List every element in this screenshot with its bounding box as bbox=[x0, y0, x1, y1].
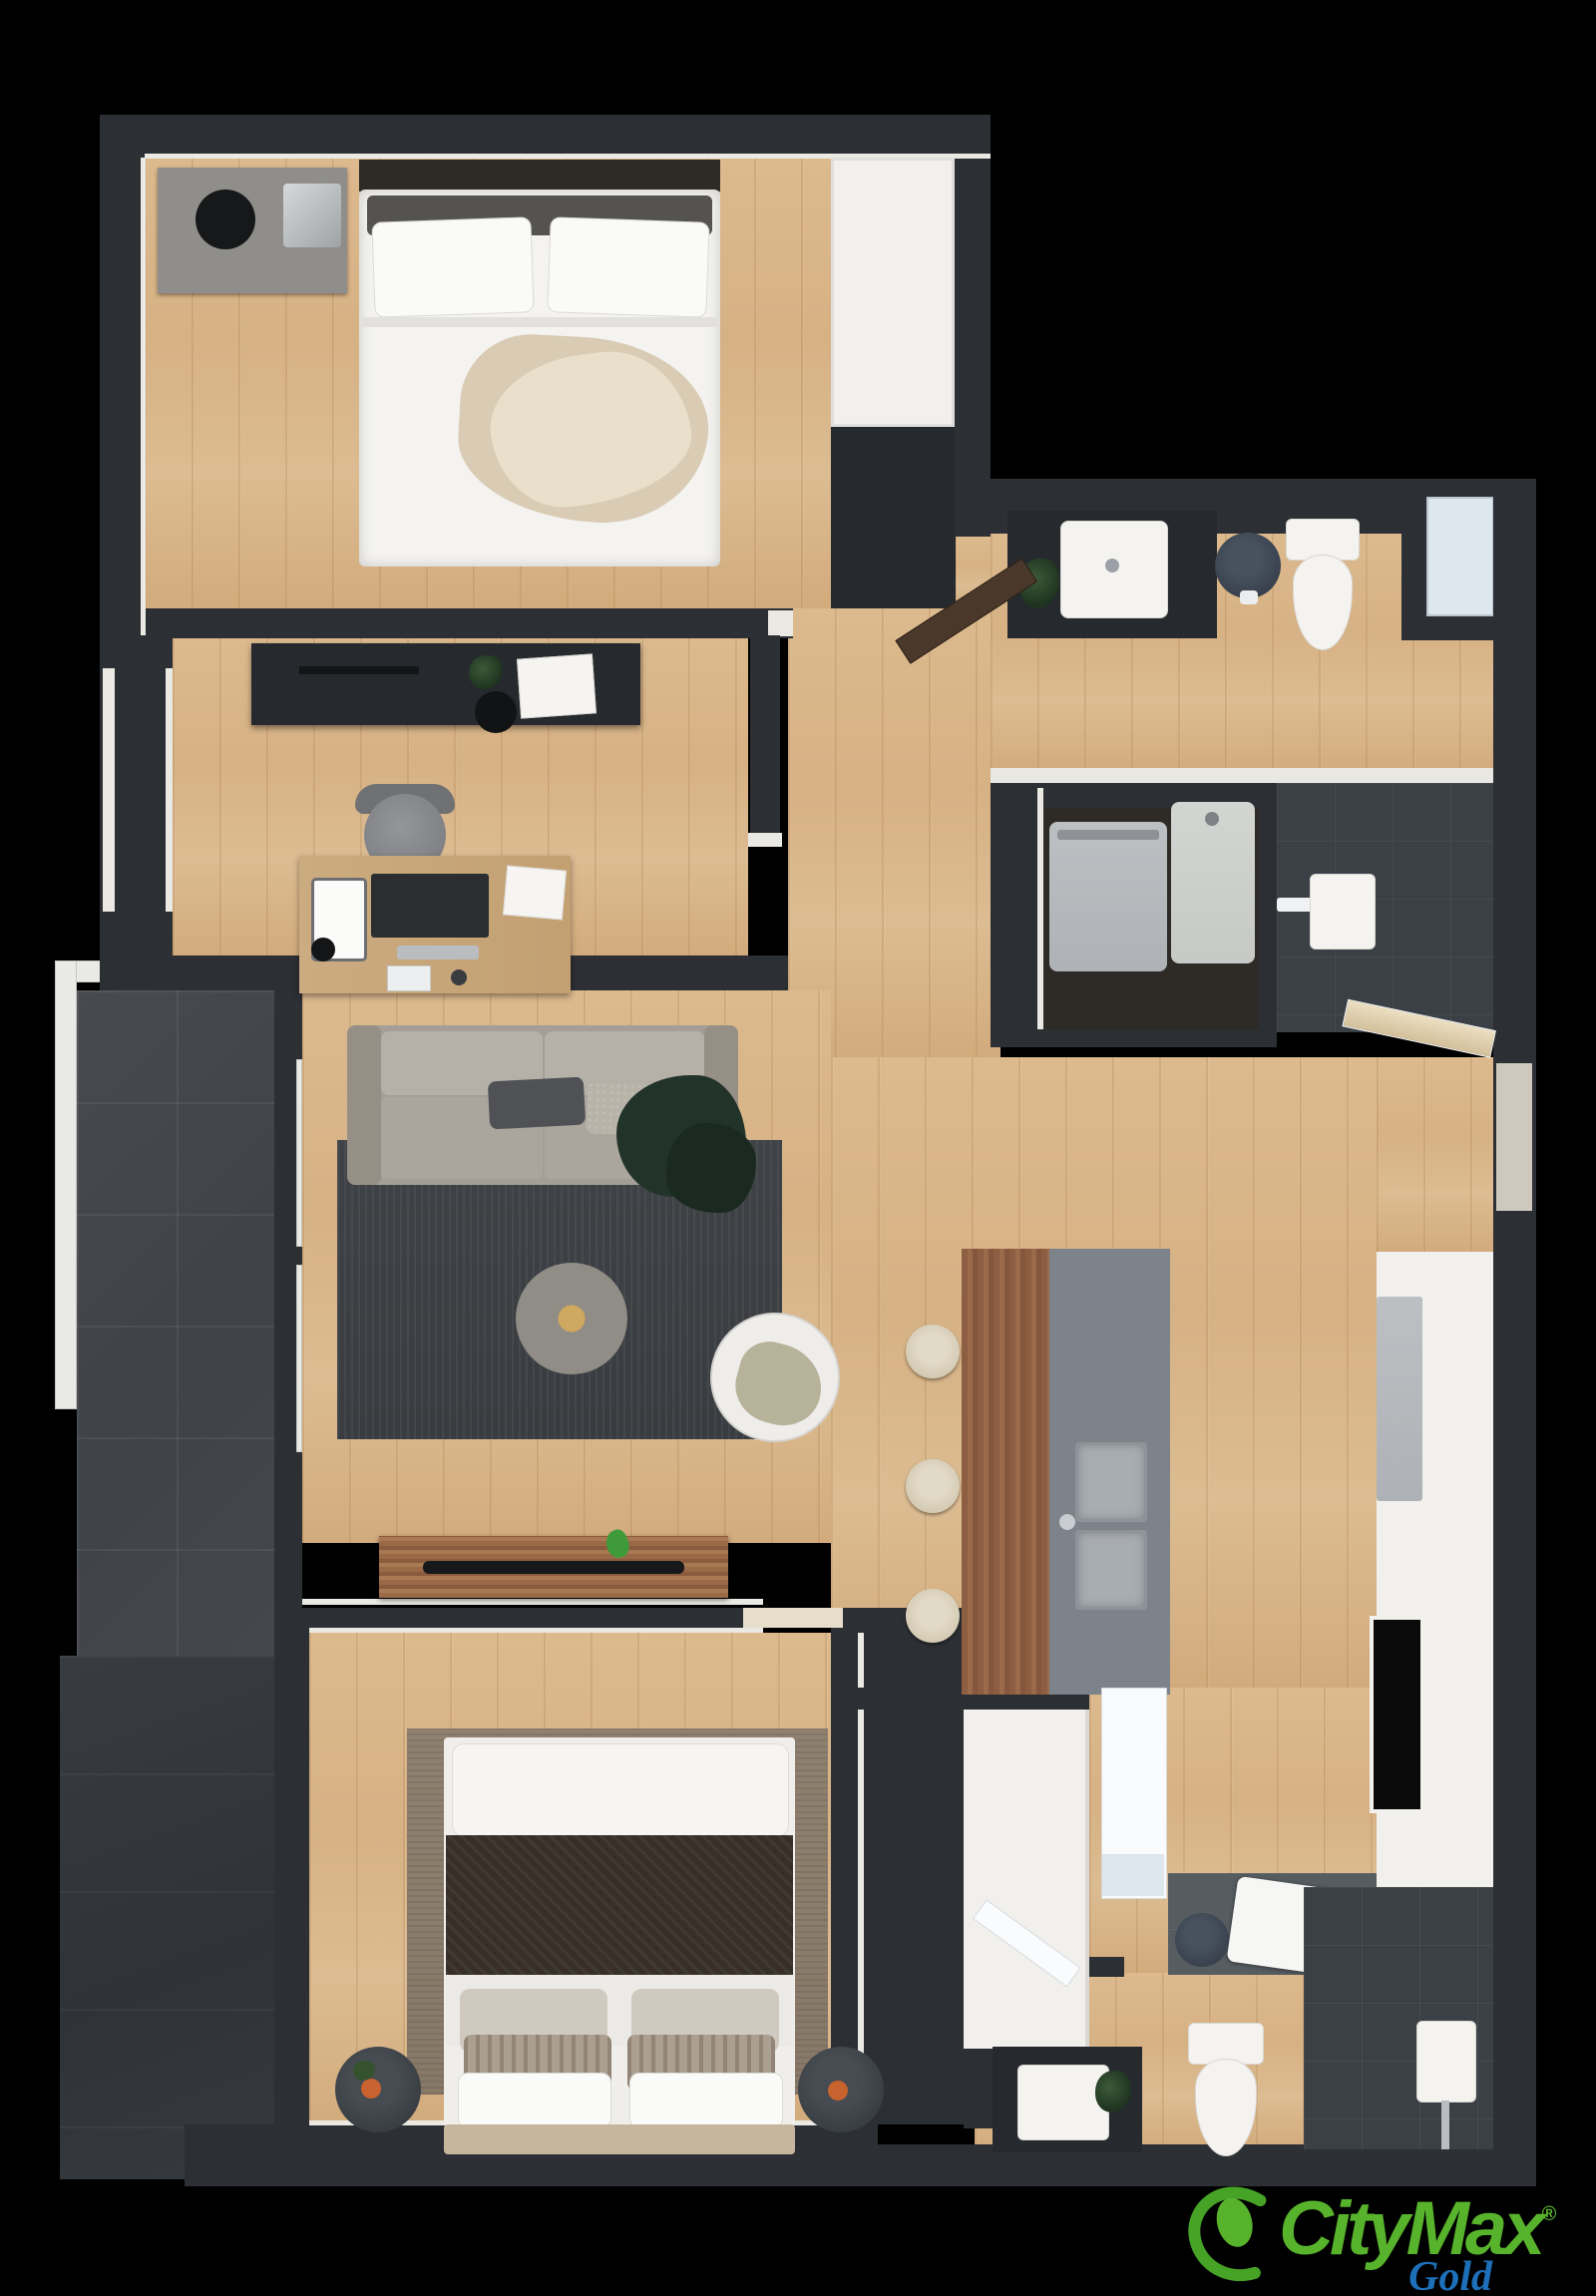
wall-closet-right bbox=[955, 158, 991, 537]
office-desk bbox=[299, 856, 571, 993]
bar-stool-1 bbox=[906, 1325, 960, 1378]
bed-1-pillow-right bbox=[547, 216, 709, 318]
wall-office-right bbox=[750, 635, 780, 835]
office-window-inner-sill bbox=[166, 668, 173, 912]
balcony-sliding-door-frame-a bbox=[296, 1059, 302, 1247]
desk-keyboard bbox=[397, 946, 479, 959]
washer bbox=[1049, 822, 1167, 971]
nightstand-2-right bbox=[798, 2047, 884, 2132]
wall-bedroom-2-left bbox=[274, 1628, 309, 2186]
shower-2-panel bbox=[1416, 2021, 1476, 2103]
bathroom-1-stool bbox=[1215, 533, 1281, 598]
bedroom-2-door-threshold bbox=[743, 1608, 843, 1628]
desk-mug bbox=[311, 938, 335, 961]
citymax-gold-logo: CityMax® Gold bbox=[1127, 2179, 1576, 2294]
brand-edition: Gold bbox=[1408, 2253, 1492, 2296]
bar-stool-2 bbox=[906, 1459, 960, 1513]
entry-floor bbox=[1377, 1057, 1493, 1252]
desk-papers bbox=[503, 865, 567, 920]
desk-mouse bbox=[451, 969, 467, 985]
office-door-jamb bbox=[768, 610, 793, 636]
dresser-plant bbox=[469, 655, 503, 689]
wall-office-top bbox=[145, 608, 793, 638]
nightstand-1-decor bbox=[283, 184, 341, 247]
nightstand-2-left bbox=[335, 2047, 421, 2132]
island-sink-basin-top bbox=[1075, 1442, 1147, 1522]
office-door-jamb-cap bbox=[748, 833, 782, 847]
nightstand-2-left-flower bbox=[361, 2079, 381, 2099]
bed-2-dark-blanket bbox=[446, 1835, 793, 1975]
citymax-swoosh-icon bbox=[1185, 2185, 1277, 2289]
wall-left-upper bbox=[100, 115, 145, 635]
dryer bbox=[1171, 802, 1255, 963]
bed-2-duvet-top bbox=[452, 1743, 789, 1837]
shower-1-fixture bbox=[1310, 874, 1376, 950]
south-hall-wardrobe bbox=[964, 1710, 1089, 2049]
bed-2 bbox=[444, 1737, 795, 2156]
brand-registered-mark: ® bbox=[1541, 2203, 1556, 2225]
wall-right bbox=[1493, 479, 1536, 2186]
balcony-sliding-door-frame-b bbox=[296, 1265, 302, 1452]
bed-2-pillow-white-left bbox=[458, 2073, 611, 2128]
hall-cabinet bbox=[831, 427, 956, 608]
south-hall-door bbox=[1101, 1688, 1167, 1899]
nightstand-1-bag bbox=[196, 190, 255, 249]
wall-edge-line-bedroom2-north bbox=[309, 1628, 763, 1633]
shower-2-pipe bbox=[1441, 2101, 1449, 2149]
wall-edge-line-left bbox=[141, 158, 146, 635]
vestibule-stool bbox=[1175, 1913, 1229, 1967]
dryer-dial bbox=[1205, 812, 1219, 826]
laundry-threshold bbox=[991, 768, 1493, 783]
laundry-door-edge bbox=[1037, 788, 1043, 1029]
washer-panel bbox=[1057, 830, 1159, 840]
nightstand-2-right-flower bbox=[828, 2081, 848, 2101]
pouf bbox=[516, 1263, 627, 1374]
bathroom-2-sink bbox=[1017, 2065, 1109, 2140]
side-table bbox=[710, 1313, 840, 1442]
wall-edge-line-living-south bbox=[302, 1599, 763, 1605]
bed-1-duvet-fold bbox=[359, 317, 720, 327]
sofa-arm-left bbox=[347, 1025, 381, 1185]
sofa-plant-leaves bbox=[666, 1123, 756, 1213]
cooktop bbox=[1377, 1297, 1422, 1501]
dresser-pens bbox=[299, 666, 419, 674]
island-faucet bbox=[1059, 1514, 1075, 1530]
wall-living-bedroom2-a bbox=[274, 1608, 743, 1628]
bed-1 bbox=[359, 190, 720, 567]
bed-1-headboard bbox=[359, 160, 720, 191]
oven bbox=[1370, 1616, 1424, 1813]
wall-top bbox=[100, 115, 991, 158]
office-dresser bbox=[251, 643, 640, 725]
desk-phone bbox=[387, 965, 431, 991]
nightstand-2-left-leaves bbox=[353, 2061, 375, 2081]
soundbar bbox=[423, 1561, 684, 1574]
terrace-tile-floor bbox=[60, 1656, 274, 2179]
bathroom-1-stool-towel bbox=[1240, 590, 1258, 604]
dresser-hat bbox=[475, 691, 517, 733]
bathroom-1-window bbox=[1426, 497, 1494, 616]
balcony-railing-left bbox=[55, 960, 77, 1409]
island-sink-basin-bottom bbox=[1075, 1530, 1147, 1610]
bed-1-pillow-left bbox=[371, 216, 534, 318]
dresser-papers bbox=[517, 653, 597, 718]
bed-2-headboard bbox=[444, 2124, 795, 2154]
bathroom-1-faucet bbox=[1105, 559, 1119, 573]
entrance-sill bbox=[1496, 1063, 1532, 1211]
south-hall-door-glass bbox=[1102, 1854, 1164, 1896]
shower-2 bbox=[1304, 1887, 1493, 2149]
floor-plan-canvas: CityMax® Gold bbox=[0, 0, 1596, 2296]
office-window-outer-sill bbox=[103, 668, 115, 912]
desk-monitor bbox=[371, 874, 489, 938]
tv-console bbox=[379, 1536, 728, 1598]
sofa-pillow-dark bbox=[488, 1077, 586, 1130]
bar-stool-3 bbox=[906, 1589, 960, 1643]
balcony-tile-floor bbox=[77, 990, 274, 1656]
hall-wardrobe-white bbox=[831, 158, 955, 427]
side-table-drape bbox=[727, 1335, 831, 1434]
island-breakfast-bar bbox=[962, 1249, 1049, 1695]
bed-2-pillow-white-right bbox=[629, 2073, 783, 2128]
